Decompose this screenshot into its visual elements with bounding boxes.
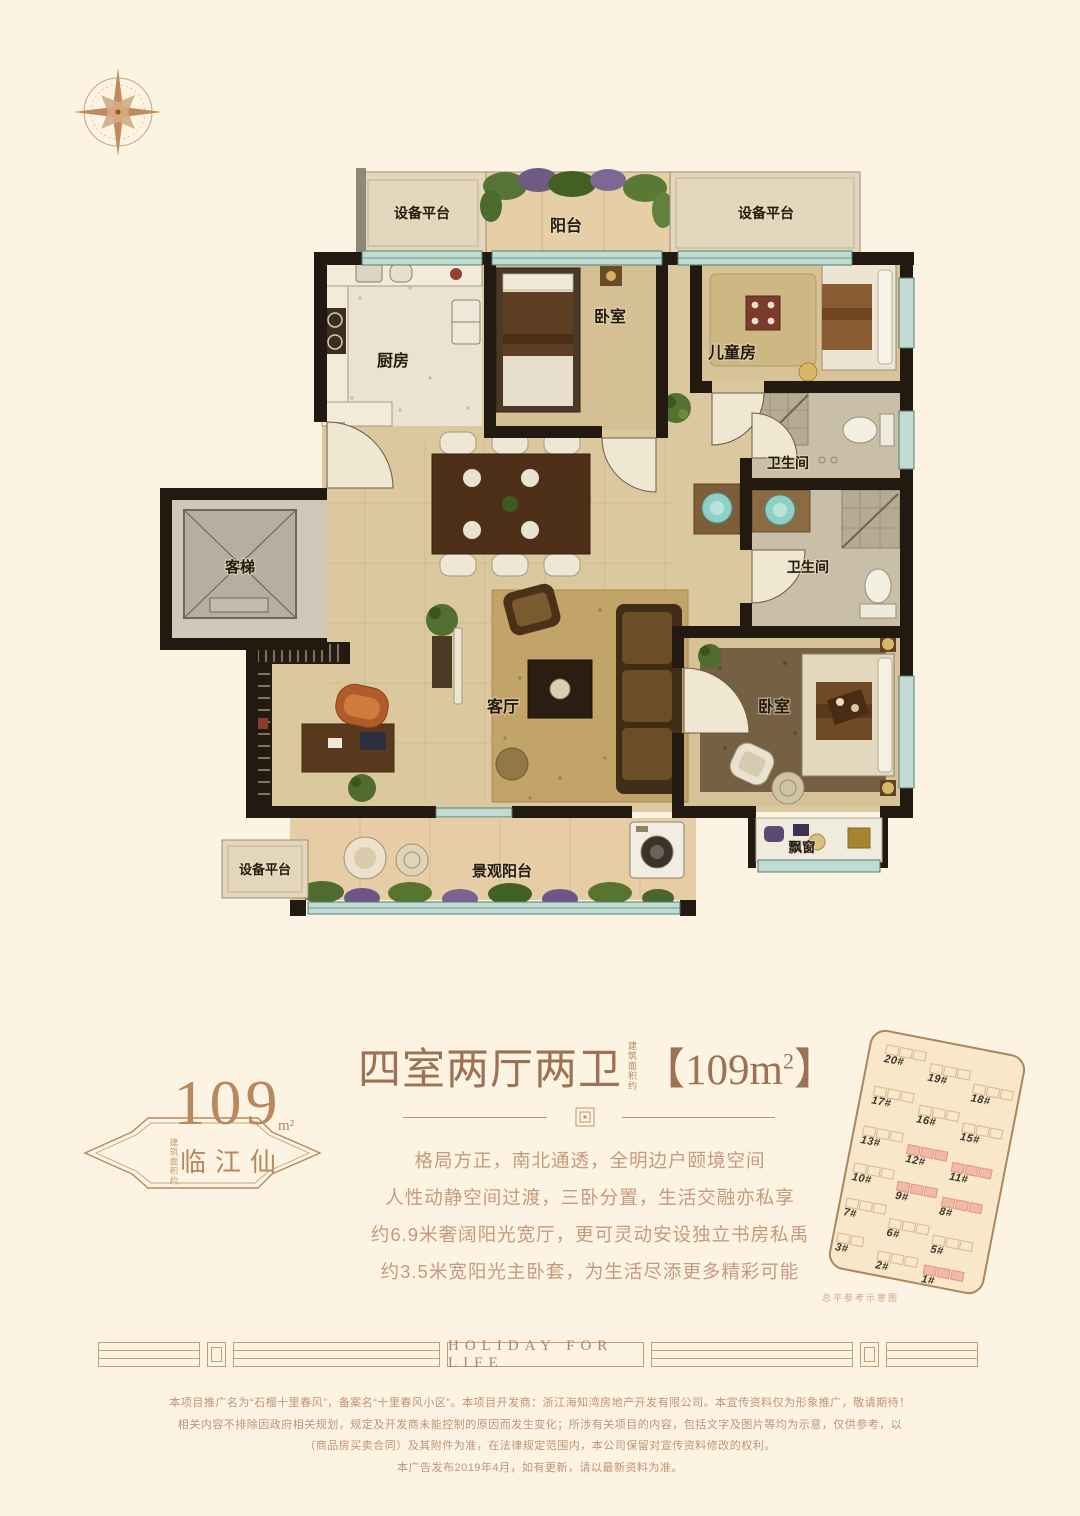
label-master-bedroom: 卧室 xyxy=(758,697,790,716)
banner-divider: HOLIDAY FOR LIFE xyxy=(98,1342,978,1367)
building-20: 20# xyxy=(883,1044,930,1073)
building-9: 9# xyxy=(894,1181,941,1210)
room-bedroom-top xyxy=(494,260,656,430)
ornament-square-icon xyxy=(860,1342,879,1367)
label-platform-top-left: 设备平台 xyxy=(394,205,450,221)
building-17: 17# xyxy=(870,1086,917,1115)
label-living-room: 客厅 xyxy=(487,697,519,716)
building-6: 6# xyxy=(885,1218,932,1247)
floor-plan: 设备平台 阳台 设备平台 厨房 卧室 儿童房 卫生间 客梯 卫生间 客厅 卧室 … xyxy=(60,158,940,958)
label-view-balcony: 景观阳台 xyxy=(472,862,532,880)
label-bath-upper: 卫生间 xyxy=(767,455,809,471)
building-7: 7# xyxy=(842,1198,889,1227)
badge-area-unit: m² xyxy=(278,1118,294,1135)
banner-text: HOLIDAY FOR LIFE xyxy=(447,1342,644,1367)
building-16: 16# xyxy=(915,1104,962,1133)
room-kids xyxy=(700,260,900,381)
building-3: 3# xyxy=(834,1233,881,1262)
building-10: 10# xyxy=(851,1163,898,1192)
label-kids-room: 儿童房 xyxy=(707,343,756,362)
building-15: 15# xyxy=(959,1123,1006,1152)
bay-window xyxy=(756,818,882,872)
site-plan-caption: 总平参考示意图 xyxy=(822,1291,899,1304)
label-elevator: 客梯 xyxy=(224,558,255,576)
ornament-square-icon xyxy=(207,1342,226,1367)
badge-area-number: 109 xyxy=(105,1066,350,1140)
title-layout: 四室两厅两卫 xyxy=(358,1035,622,1097)
label-platform-bottom-left: 设备平台 xyxy=(239,862,291,877)
building-13: 13# xyxy=(860,1125,907,1154)
divider-line-left xyxy=(403,1117,547,1118)
building-18: 18# xyxy=(970,1083,1017,1112)
divider-line-right xyxy=(622,1117,775,1118)
title-area: 【109m2】 xyxy=(642,1035,837,1097)
building-2: 2# xyxy=(874,1250,921,1279)
title-divider xyxy=(403,1107,775,1127)
wash-basin xyxy=(694,484,740,534)
label-platform-top-right: 设备平台 xyxy=(738,205,794,221)
dining-set xyxy=(432,432,590,576)
disclaimer: 本项目推广名为“石榴十里春风”，备案名“十里春风小区”。本项目开发商：浙江海知湾… xyxy=(90,1393,990,1479)
divider-bar xyxy=(886,1342,978,1367)
label-bedroom-top: 卧室 xyxy=(594,307,626,326)
label-bay-window: 飘窗 xyxy=(789,839,816,855)
title-vertical-note: 建筑面积约 xyxy=(626,1041,639,1091)
poster-page: { "colors": { "background": "#fdf3e2", "… xyxy=(0,0,1080,1516)
sofa-area xyxy=(492,582,688,802)
room-kitchen xyxy=(322,260,482,426)
building-12: 12# xyxy=(905,1144,952,1173)
disclaimer-line: 相关内容不排除因政府相关规划，规定及开发商未能控制的原因而发生变化；所涉有关项目… xyxy=(90,1415,990,1437)
plan-title: 四室两厅两卫 建筑面积约 【109m2】 xyxy=(358,1035,837,1097)
building-19: 19# xyxy=(927,1062,974,1091)
label-bath-lower: 卫生间 xyxy=(787,559,829,575)
disclaimer-line: （商品房买卖合同）及其附件为准，在法律规定范围内，本公司保留对宣传资料修改的权利… xyxy=(90,1436,990,1458)
label-kitchen: 厨房 xyxy=(377,351,409,370)
compass-icon xyxy=(70,64,166,160)
disclaimer-line: 本广告发布2019年4月，如有更新，请以最新资料为准。 xyxy=(90,1458,990,1480)
building-5: 5# xyxy=(929,1234,976,1263)
label-balcony-top: 阳台 xyxy=(550,216,582,235)
building-11: 11# xyxy=(948,1162,995,1191)
divider-bar xyxy=(233,1342,440,1367)
square-knot-icon xyxy=(575,1107,595,1127)
balcony-top xyxy=(480,168,674,254)
divider-bar xyxy=(98,1342,200,1367)
disclaimer-line: 本项目推广名为“石榴十里春风”，备案名“十里春风小区”。本项目开发商：浙江海知湾… xyxy=(90,1393,990,1415)
divider-bar xyxy=(651,1342,853,1367)
building-8: 8# xyxy=(938,1197,985,1226)
